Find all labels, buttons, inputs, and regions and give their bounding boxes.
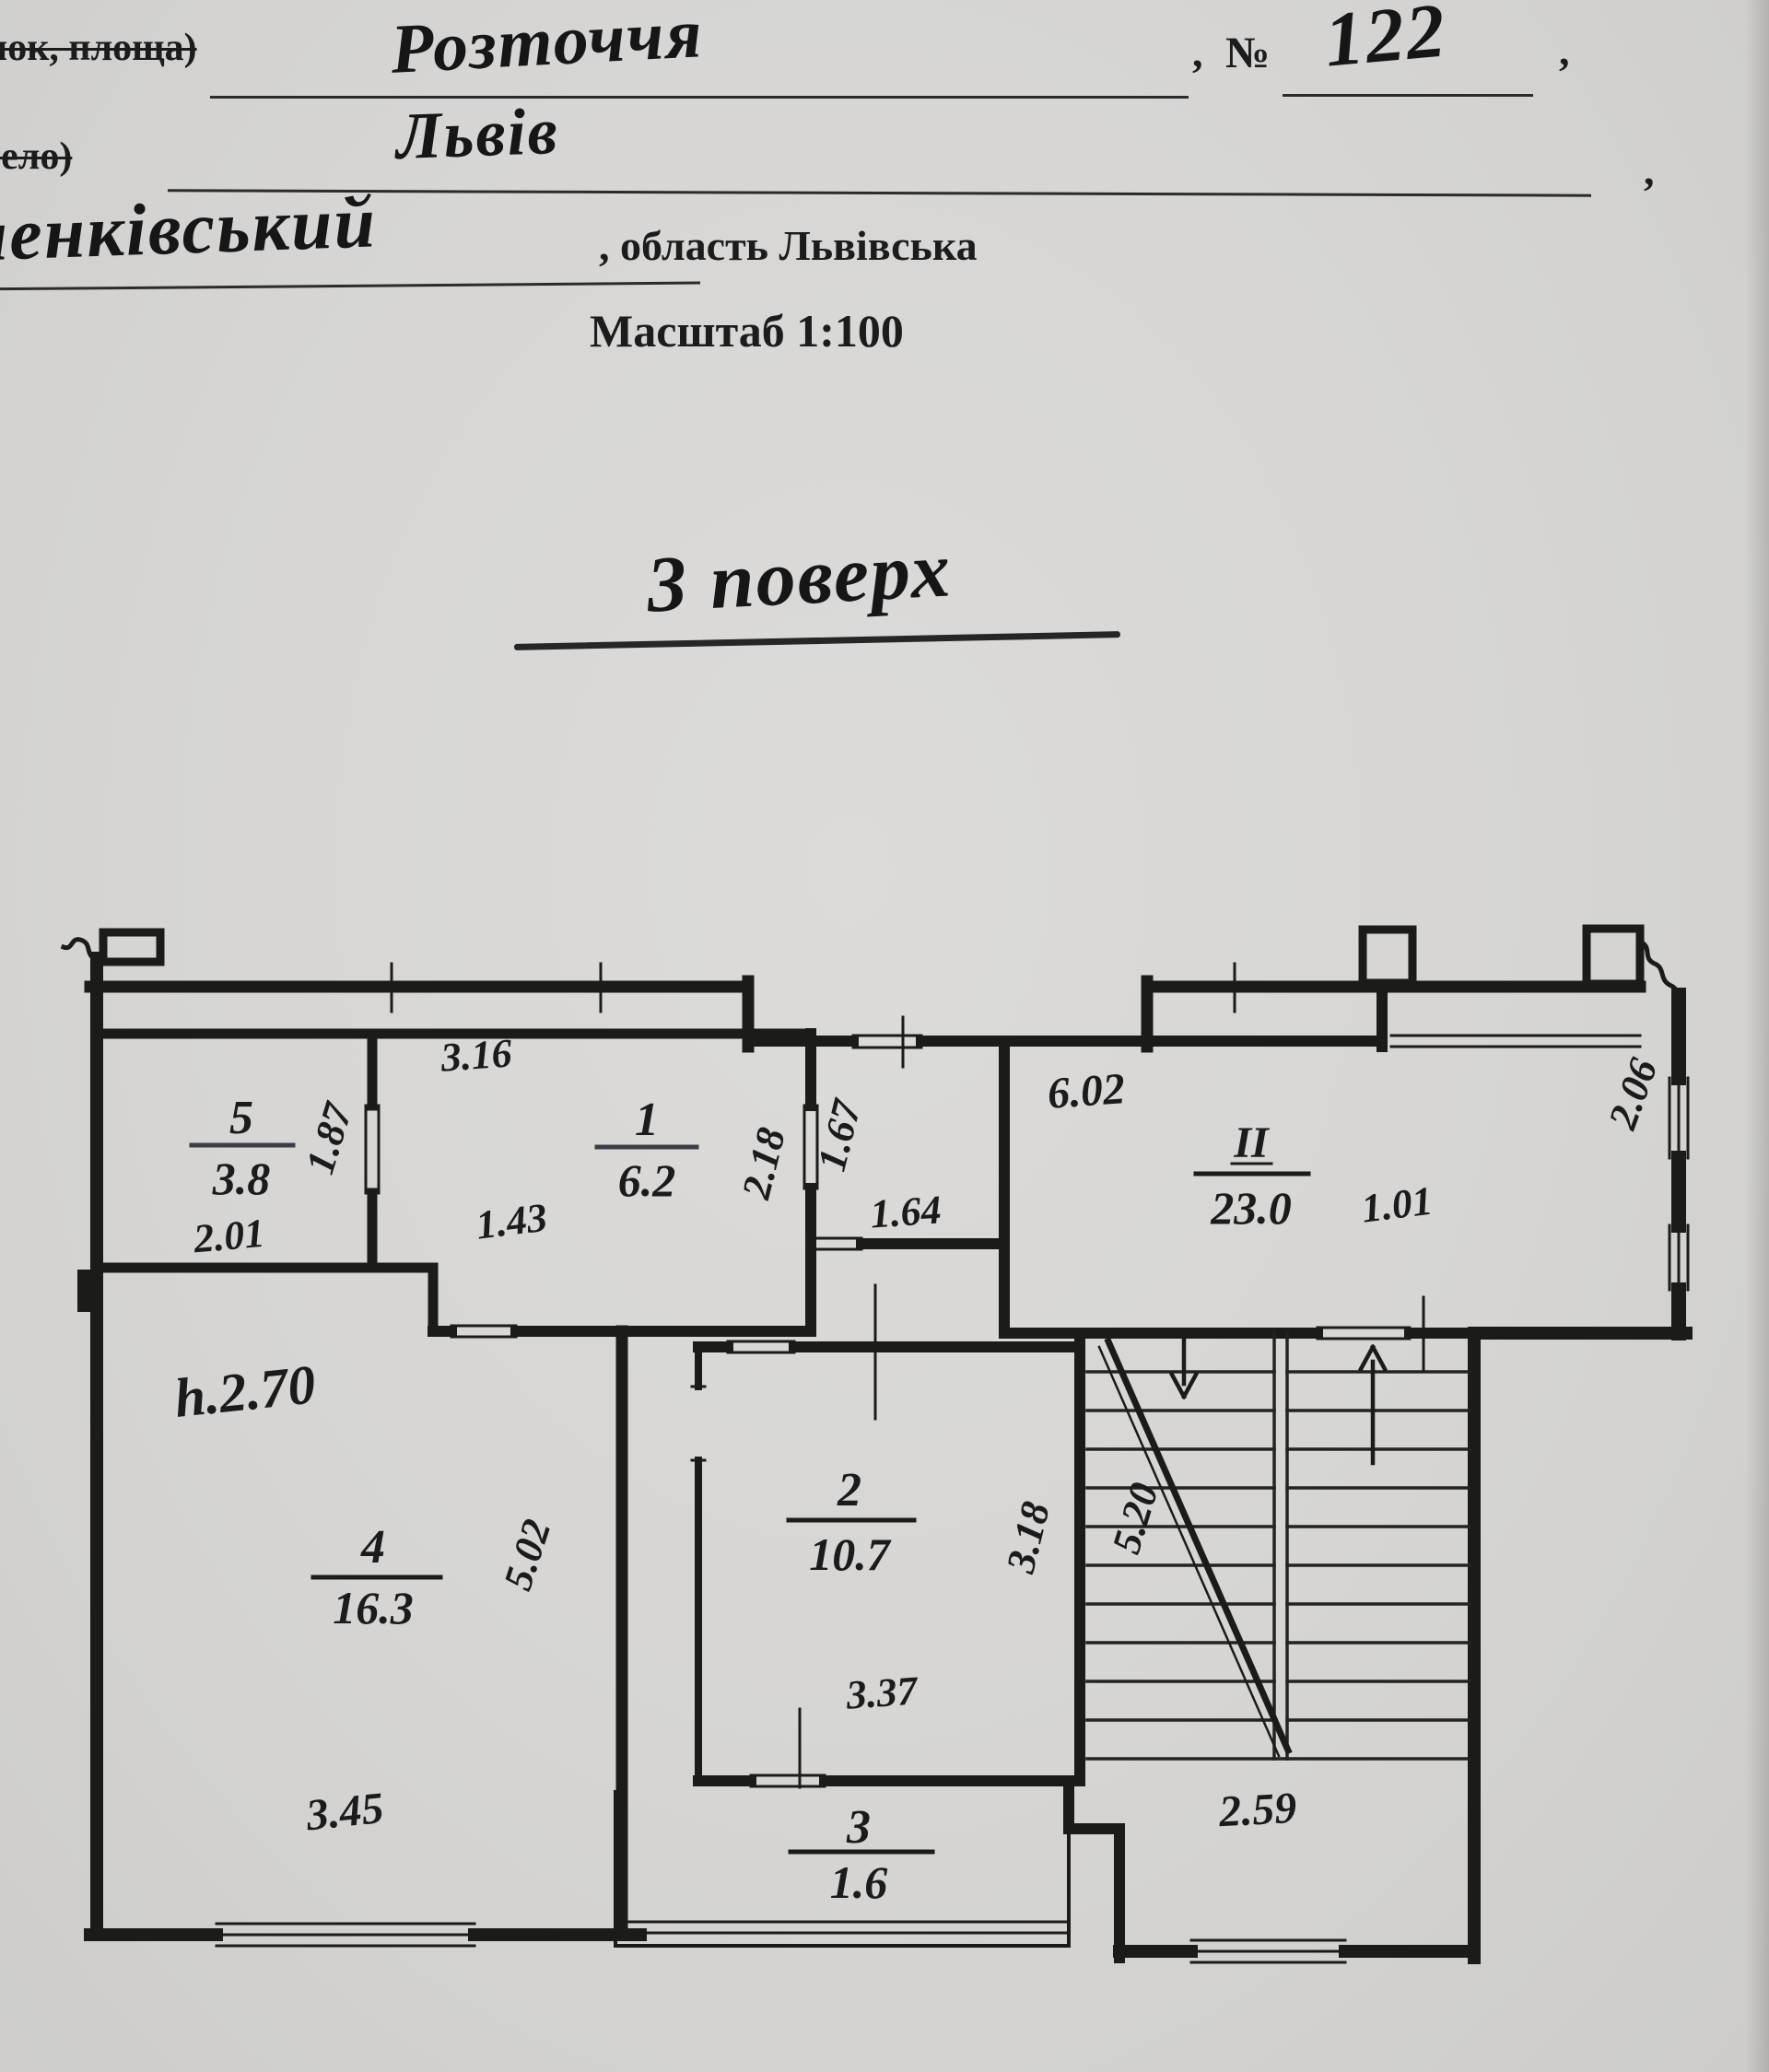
room5-area: 3.8 [212, 1153, 271, 1204]
dim-2-59: 2.59 [1217, 1784, 1298, 1836]
dim-3-37: 3.37 [844, 1668, 920, 1717]
dim-1-01: 1.01 [1359, 1178, 1435, 1232]
dim-3-45: 3.45 [303, 1784, 386, 1841]
roomII-number: II [1233, 1118, 1271, 1167]
dim-2-18: 2.18 [733, 1123, 794, 1204]
roomII-area: 23.0 [1210, 1182, 1292, 1234]
room3-area: 1.6 [830, 1856, 888, 1908]
room1-area: 6.2 [618, 1154, 676, 1206]
floor-plan-drawing: 5 3.8 1 6.2 II 23.0 2 10.7 4 16.3 3 1.6 … [0, 0, 1769, 2072]
dim-5-20: 5.20 [1103, 1478, 1166, 1559]
ceiling-height-note-handwritten: h.2.70 [171, 1353, 318, 1429]
stair-direction-arrows [1172, 1340, 1385, 1463]
room4-number: 4 [360, 1521, 385, 1574]
room2-number: 2 [837, 1464, 861, 1516]
room4-area: 16.3 [333, 1582, 414, 1633]
dim-1-87: 1.87 [297, 1096, 361, 1179]
scanned-floor-plan-page: нок, площа) Розточчя , № 122 , село) Льв… [0, 0, 1769, 2072]
dim-2-01: 2.01 [191, 1211, 266, 1262]
dim-6-02: 6.02 [1046, 1064, 1126, 1118]
dim-5-02: 5.02 [495, 1514, 559, 1595]
room3-number: 3 [846, 1801, 871, 1854]
room2-area: 10.7 [809, 1528, 892, 1580]
dim-3-16: 3.16 [439, 1030, 513, 1080]
room1-number: 1 [635, 1094, 659, 1146]
dim-1-64: 1.64 [869, 1187, 943, 1236]
dim-3-18: 3.18 [998, 1497, 1059, 1578]
room5-number: 5 [229, 1092, 253, 1144]
dim-2-06: 2.06 [1599, 1052, 1667, 1135]
dim-1-43: 1.43 [474, 1195, 549, 1248]
